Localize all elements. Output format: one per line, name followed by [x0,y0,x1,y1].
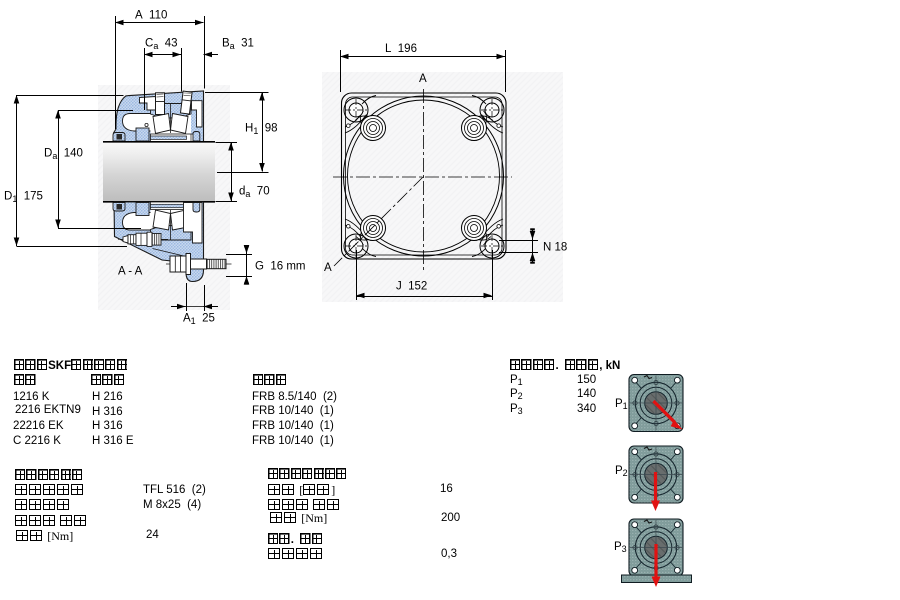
svg-text:N 18: N 18 [543,242,567,254]
svg-text:L 196: L 196 [385,43,417,55]
svg-text:J 152: J 152 [396,281,427,293]
svg-text:A: A [324,262,332,274]
svg-text:A - A: A - A [118,266,143,278]
svg-text:A: A [419,73,427,85]
svg-text:Da 140: Da 140 [44,148,83,162]
svg-text:G 16 mm: G 16 mm [255,261,305,273]
svg-text:Ba 31: Ba 31 [222,38,254,52]
svg-text:H1 98: H1 98 [245,123,278,137]
svg-text:da 70: da 70 [239,186,270,200]
svg-text:D1 175: D1 175 [4,191,43,205]
svg-text:A 110: A 110 [135,10,167,22]
svg-text:Ca 43: Ca 43 [145,38,178,52]
svg-text:A1 25: A1 25 [183,313,215,327]
